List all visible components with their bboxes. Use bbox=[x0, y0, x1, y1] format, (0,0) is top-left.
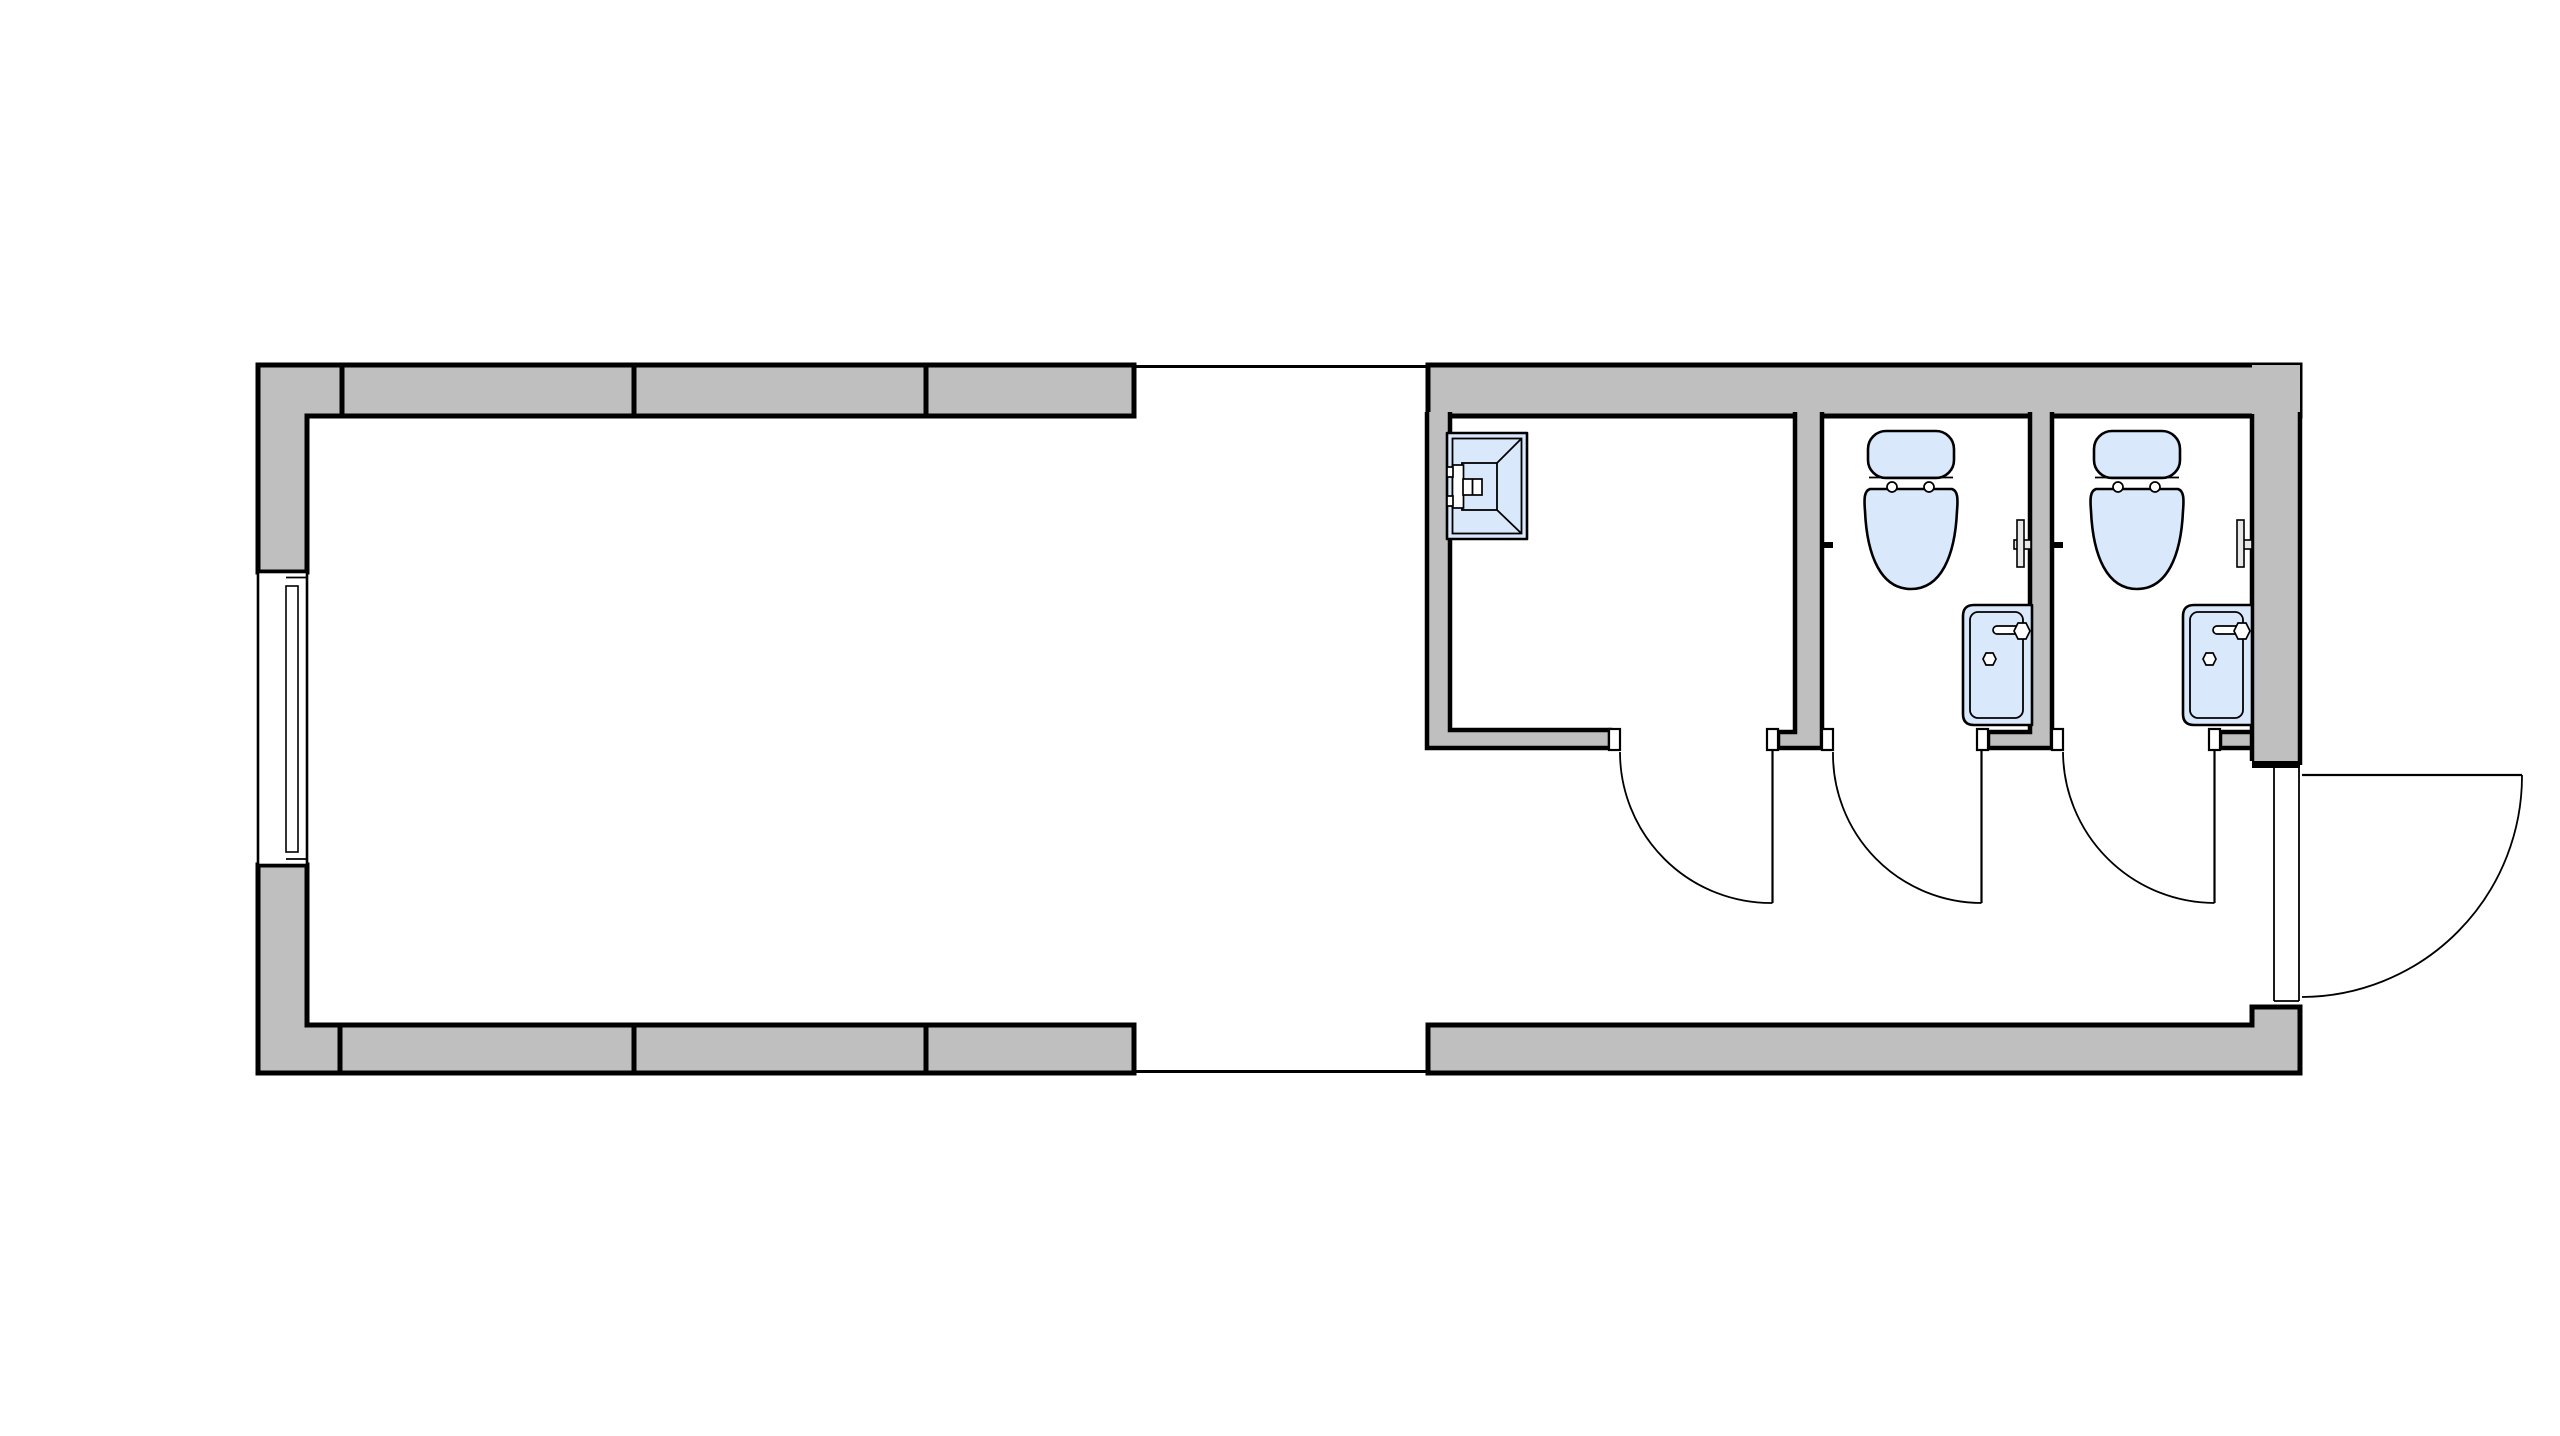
wall-top-segment-2 bbox=[634, 365, 926, 416]
toilet-2-bolt-right bbox=[2150, 482, 2160, 492]
door1-swing-arc bbox=[1620, 752, 1773, 903]
window-frame bbox=[258, 572, 307, 865]
toilet-1-bolt-right bbox=[1924, 482, 1934, 492]
wall-right-end-cap bbox=[2252, 761, 2300, 768]
jamb-door1-left bbox=[1609, 729, 1620, 750]
jamb-door2-right bbox=[1977, 729, 1988, 750]
jamb-door1-right bbox=[1767, 729, 1778, 750]
door3-swing-arc bbox=[2063, 752, 2215, 903]
window-left-wall bbox=[258, 572, 307, 865]
toilet-1-bolt-left bbox=[1887, 482, 1897, 492]
sink-1-drain bbox=[1983, 653, 1996, 665]
wall-corner-top-left bbox=[258, 365, 342, 572]
toilet-2 bbox=[2091, 431, 2184, 589]
toilet-1-tank bbox=[1868, 431, 1954, 478]
wall-corner-bottom-left bbox=[258, 865, 340, 1073]
wall-bottom-right-section bbox=[1428, 1007, 2300, 1073]
jamb-door2-left bbox=[1822, 729, 1833, 750]
stall2-wall-bracket bbox=[2052, 542, 2063, 548]
toilet-2-bowl bbox=[2091, 489, 2184, 589]
sink-1 bbox=[1963, 605, 2032, 725]
floor-plan-drawing bbox=[0, 0, 2560, 1436]
sink-2 bbox=[2183, 605, 2252, 725]
wall-bottom-segment-3 bbox=[926, 1025, 1134, 1073]
wall-bottom-segment-2 bbox=[634, 1025, 926, 1073]
shower-valve-panel bbox=[1453, 465, 1464, 508]
wall-top-right-section bbox=[1428, 365, 2300, 416]
toilet-1 bbox=[1865, 431, 1958, 589]
partition-a-fill bbox=[1778, 412, 1822, 748]
stall1-valve-bar bbox=[2017, 520, 2024, 567]
wall-top-segment-3 bbox=[926, 365, 1134, 416]
shower-hinge-bottom bbox=[1447, 496, 1453, 506]
exterior-entry-door bbox=[2274, 768, 2522, 1001]
shower-hinge-top bbox=[1447, 467, 1453, 477]
toilet-2-tank bbox=[2094, 431, 2180, 478]
stall2-valve-bar bbox=[2237, 520, 2244, 567]
main-room-walls bbox=[258, 365, 1134, 1073]
window-glass bbox=[286, 586, 298, 852]
floor-plan-canvas bbox=[0, 0, 2560, 1436]
sink-1-faucet-valve bbox=[2014, 623, 2030, 639]
sink-2-faucet-valve bbox=[2234, 623, 2250, 639]
door2-swing-arc bbox=[1833, 752, 1982, 903]
wall-right-fill bbox=[2252, 365, 2300, 765]
stall2-stub-fill bbox=[2220, 732, 2252, 748]
door-jambs bbox=[1609, 729, 2220, 750]
stall1-wall-bracket bbox=[1822, 542, 1833, 548]
wall-bottom-segment-1 bbox=[340, 1025, 634, 1073]
jamb-door3-right bbox=[2209, 729, 2220, 750]
sink-2-drain bbox=[2203, 653, 2216, 665]
toilet-1-bowl bbox=[1865, 489, 1958, 589]
toilet-2-bolt-left bbox=[2113, 482, 2123, 492]
entry-door-swing-arc bbox=[2302, 775, 2522, 997]
interior-doors bbox=[1620, 750, 2215, 903]
shower bbox=[1447, 433, 1527, 539]
wall-top-segment-1 bbox=[342, 365, 634, 416]
jamb-door3-left bbox=[2052, 729, 2063, 750]
